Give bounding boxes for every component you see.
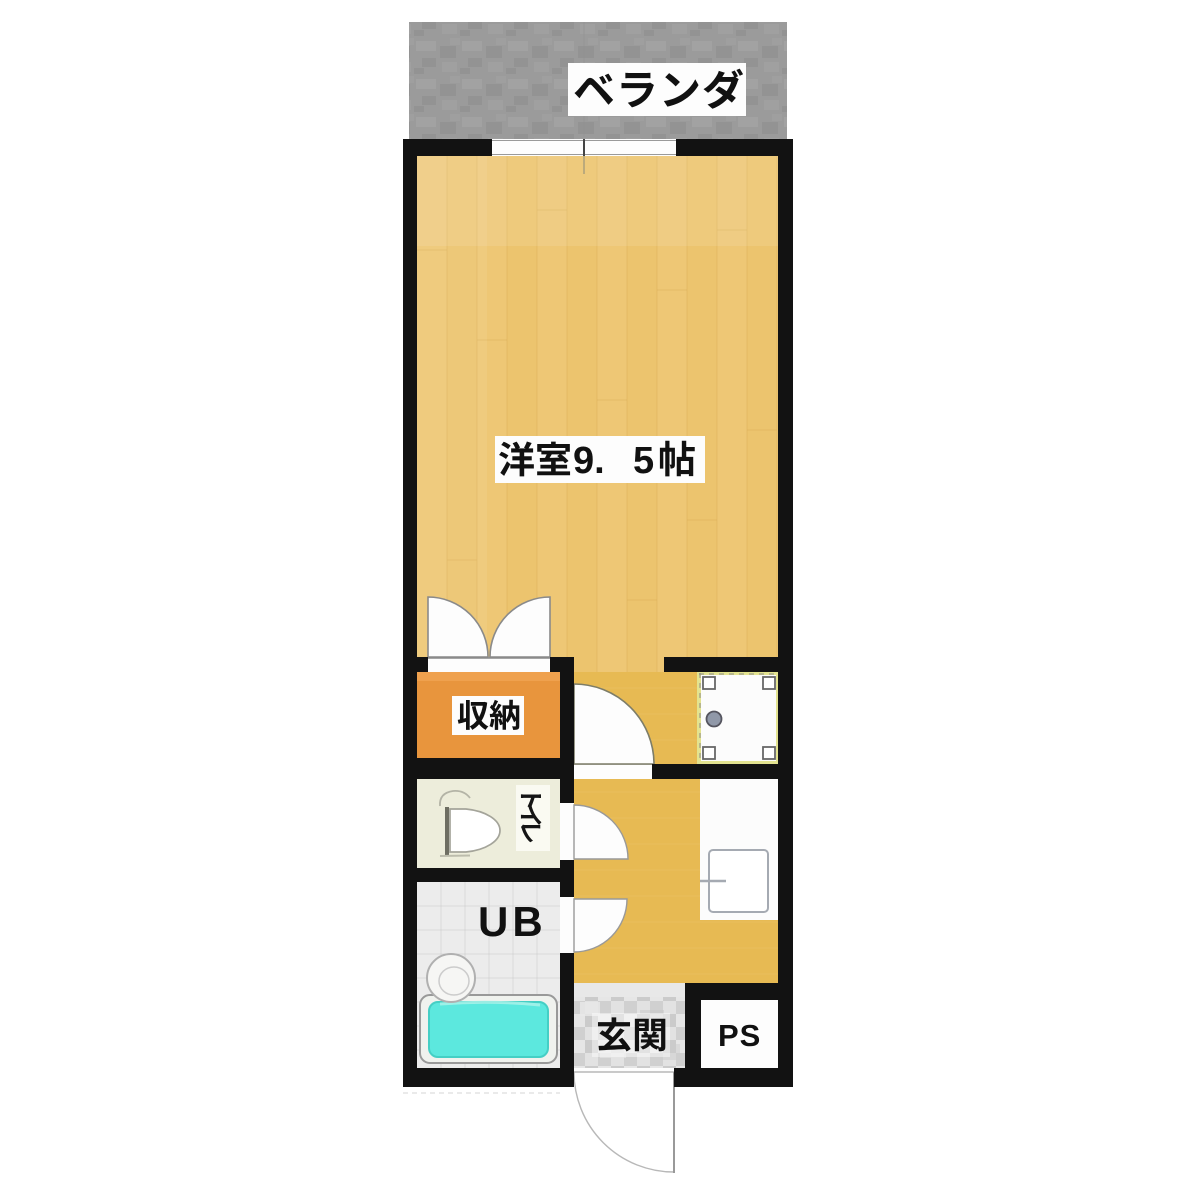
svg-text:9.: 9. <box>573 440 605 482</box>
svg-text:5: 5 <box>633 440 654 482</box>
svg-text:PS: PS <box>718 1018 761 1053</box>
svg-text:UB: UB <box>478 898 547 945</box>
